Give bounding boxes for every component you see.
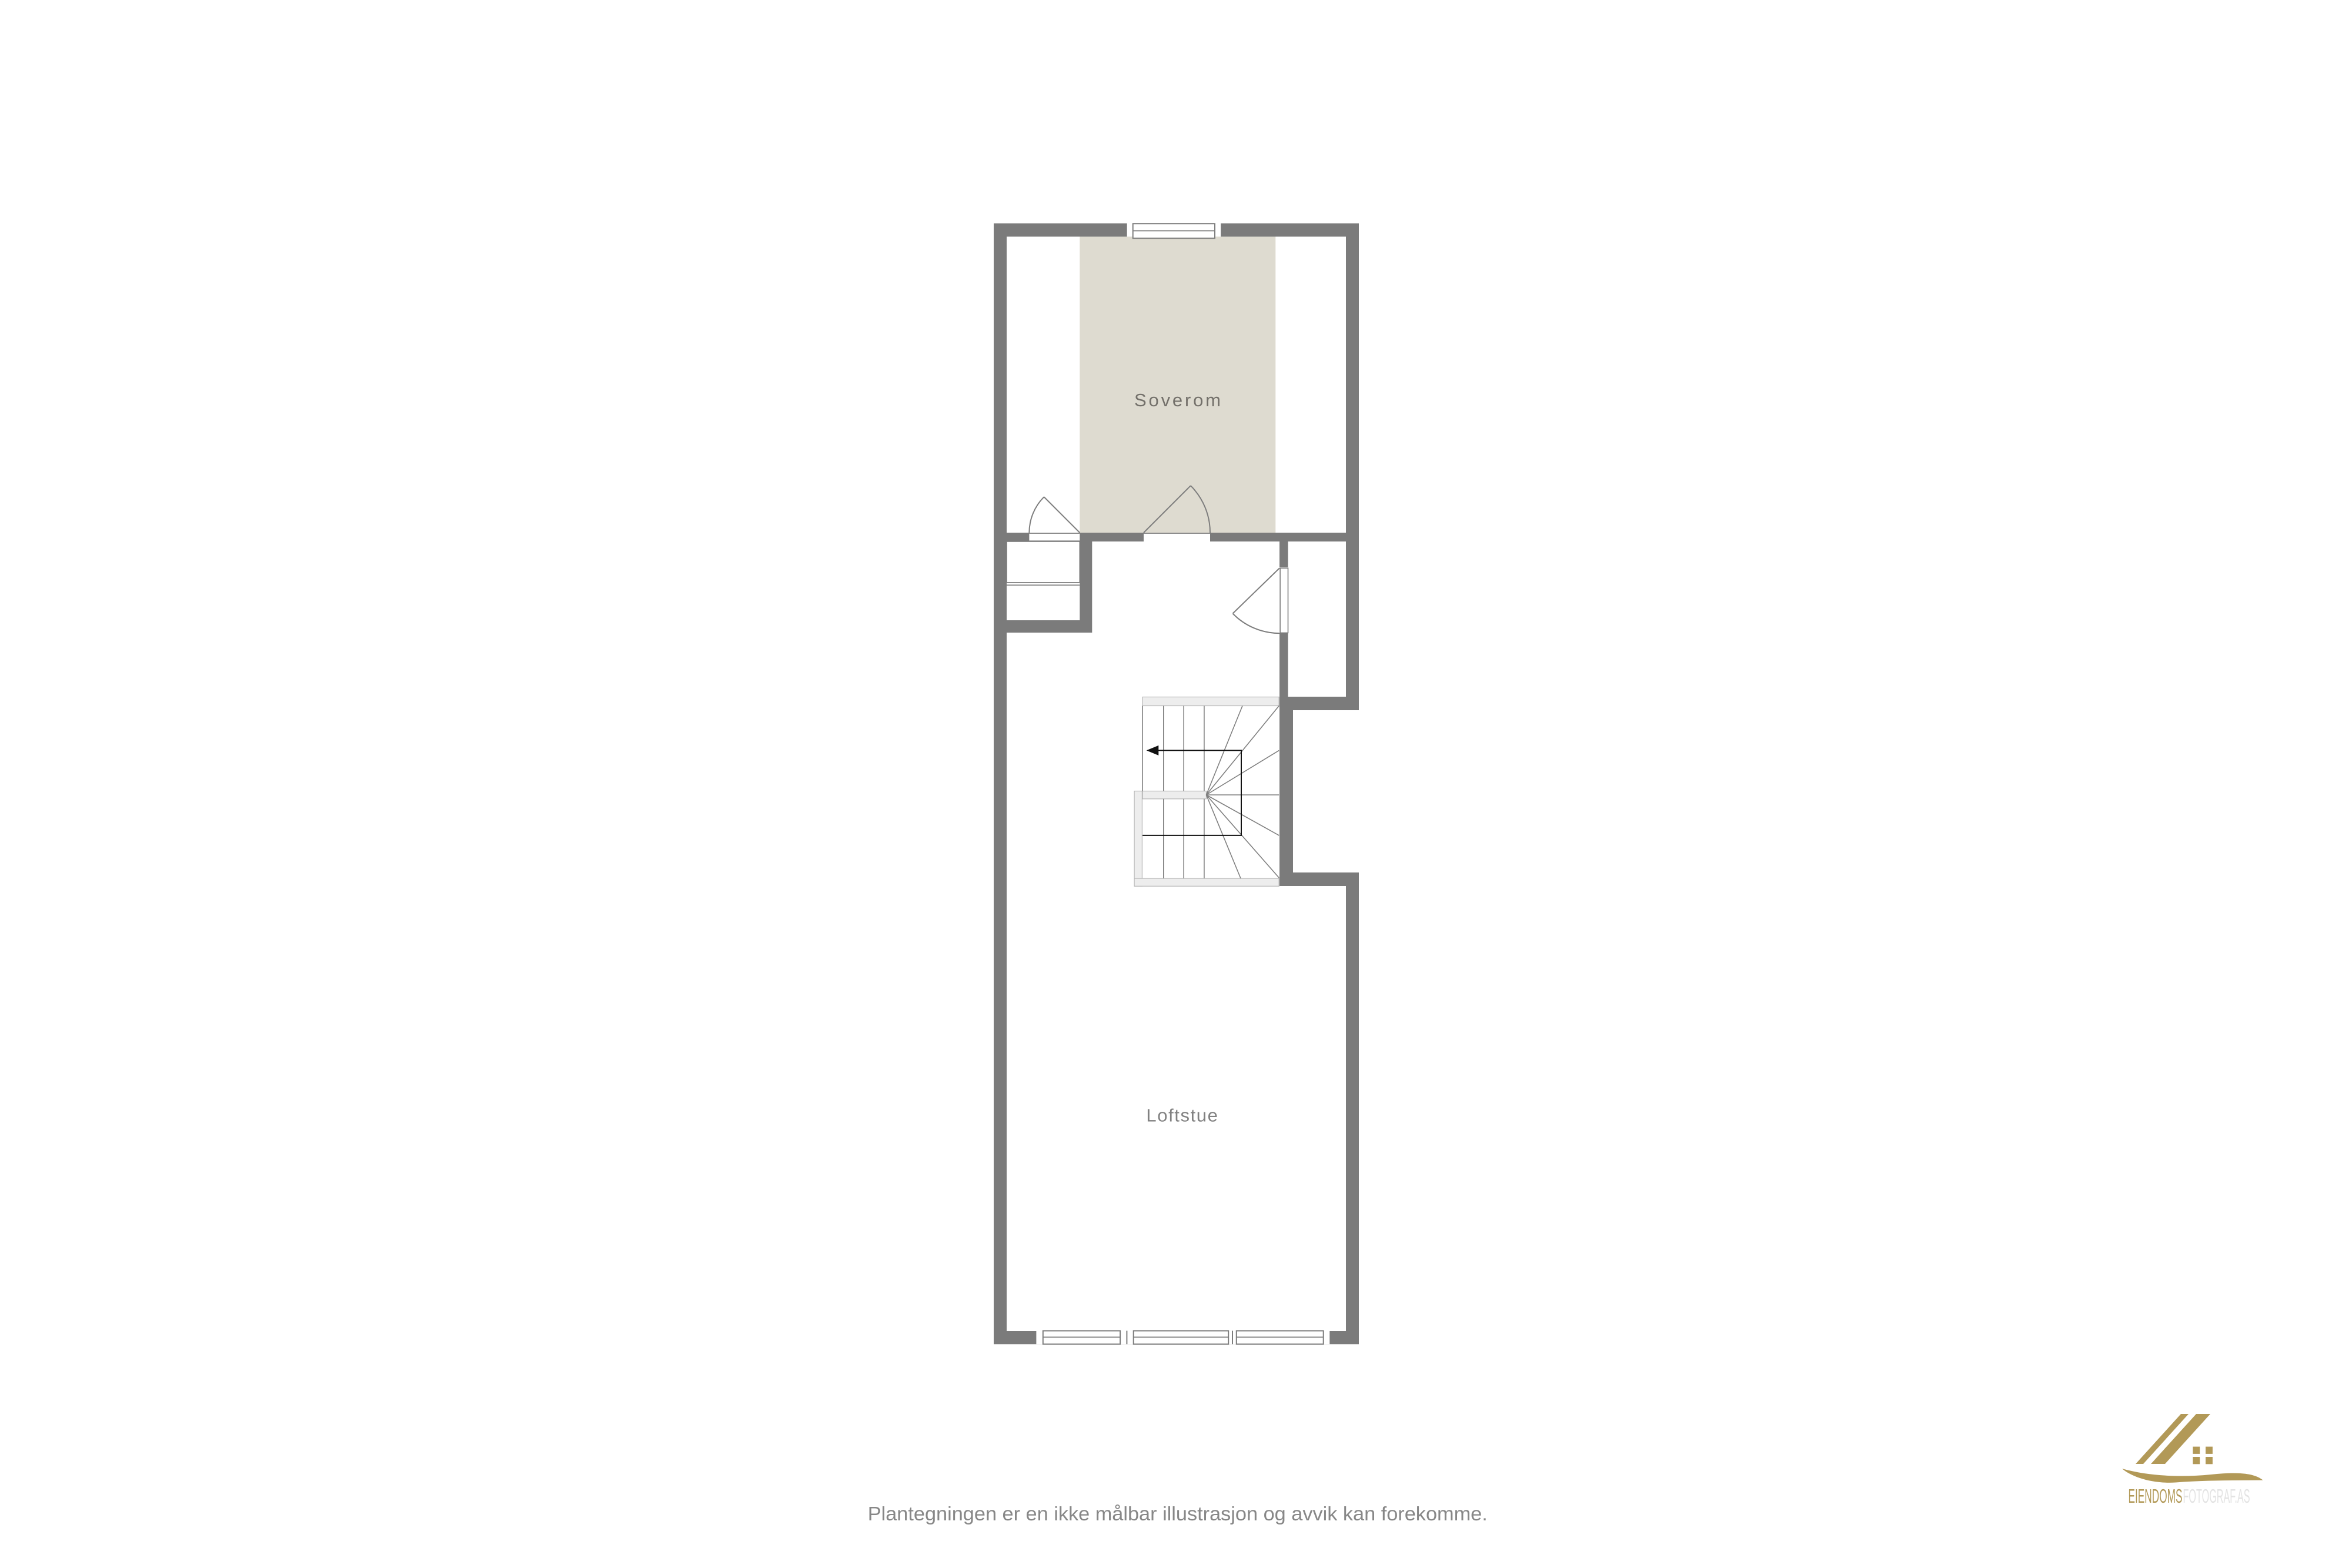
svg-text:FOTOGRAF.AS: FOTOGRAF.AS <box>2183 1485 2250 1507</box>
svg-text:Plantegningen er en ikke målba: Plantegningen er en ikke målbar illustra… <box>868 1503 1488 1524</box>
svg-text:EIENDOMS: EIENDOMS <box>2129 1485 2183 1507</box>
svg-text:Loftstue: Loftstue <box>1146 1105 1217 1126</box>
